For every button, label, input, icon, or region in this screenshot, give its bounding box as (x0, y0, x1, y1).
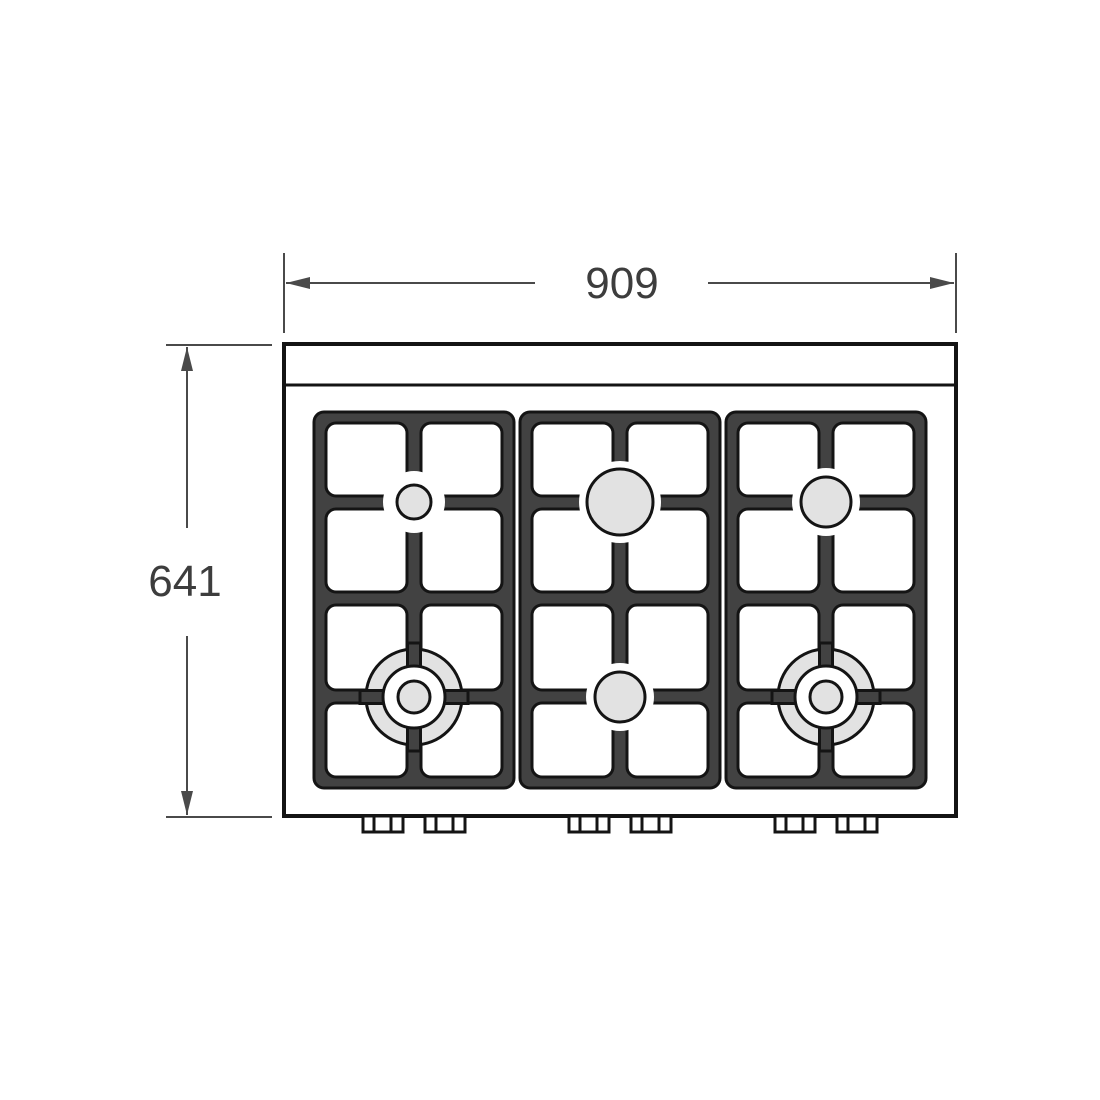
mounting-tab (631, 816, 671, 832)
mounting-tab (569, 816, 609, 832)
medium-burner-icon (595, 672, 645, 722)
arrow-right-icon (930, 277, 954, 289)
height-dimension-label: 641 (148, 557, 221, 606)
burner-bottom-center-medium (586, 663, 654, 731)
burner-top-right-medium (792, 468, 860, 536)
height-dimension: 641 (148, 345, 272, 817)
wok-burner-center (810, 681, 842, 713)
arrow-up-icon (181, 347, 193, 371)
wok-burner-center (398, 681, 430, 713)
large-burner-icon (587, 469, 653, 535)
mounting-tab (425, 816, 465, 832)
burner-top-center-large (579, 461, 661, 543)
mounting-tab (837, 816, 877, 832)
medium-burner-icon (801, 477, 851, 527)
burner-top-left-small (383, 471, 445, 533)
width-dimension: 909 (284, 253, 956, 333)
arrow-down-icon (181, 791, 193, 815)
small-burner-icon (397, 485, 431, 519)
arrow-left-icon (286, 277, 310, 289)
mounting-feet (363, 816, 877, 832)
cooktop-technical-drawing: 909 641 (0, 0, 1100, 1100)
width-dimension-label: 909 (585, 259, 658, 308)
mounting-tab (363, 816, 403, 832)
mounting-tab (775, 816, 815, 832)
cooktop-top-view-svg: 909 641 (0, 0, 1100, 1100)
